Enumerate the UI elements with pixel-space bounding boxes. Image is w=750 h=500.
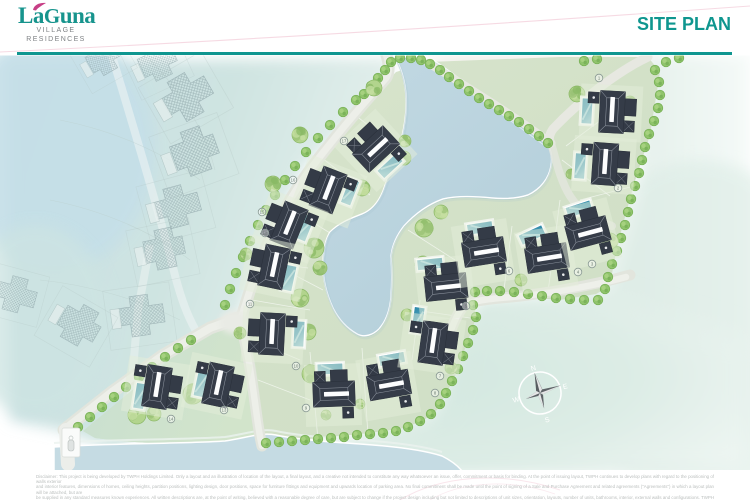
svg-text:16: 16 [291, 178, 296, 183]
svg-text:15: 15 [260, 210, 265, 215]
svg-text:17: 17 [342, 139, 347, 144]
svg-text:13: 13 [222, 408, 227, 413]
svg-text:11: 11 [248, 302, 253, 307]
svg-text:14: 14 [169, 417, 174, 422]
svg-text:10: 10 [294, 364, 299, 369]
svg-text:12: 12 [263, 231, 268, 236]
